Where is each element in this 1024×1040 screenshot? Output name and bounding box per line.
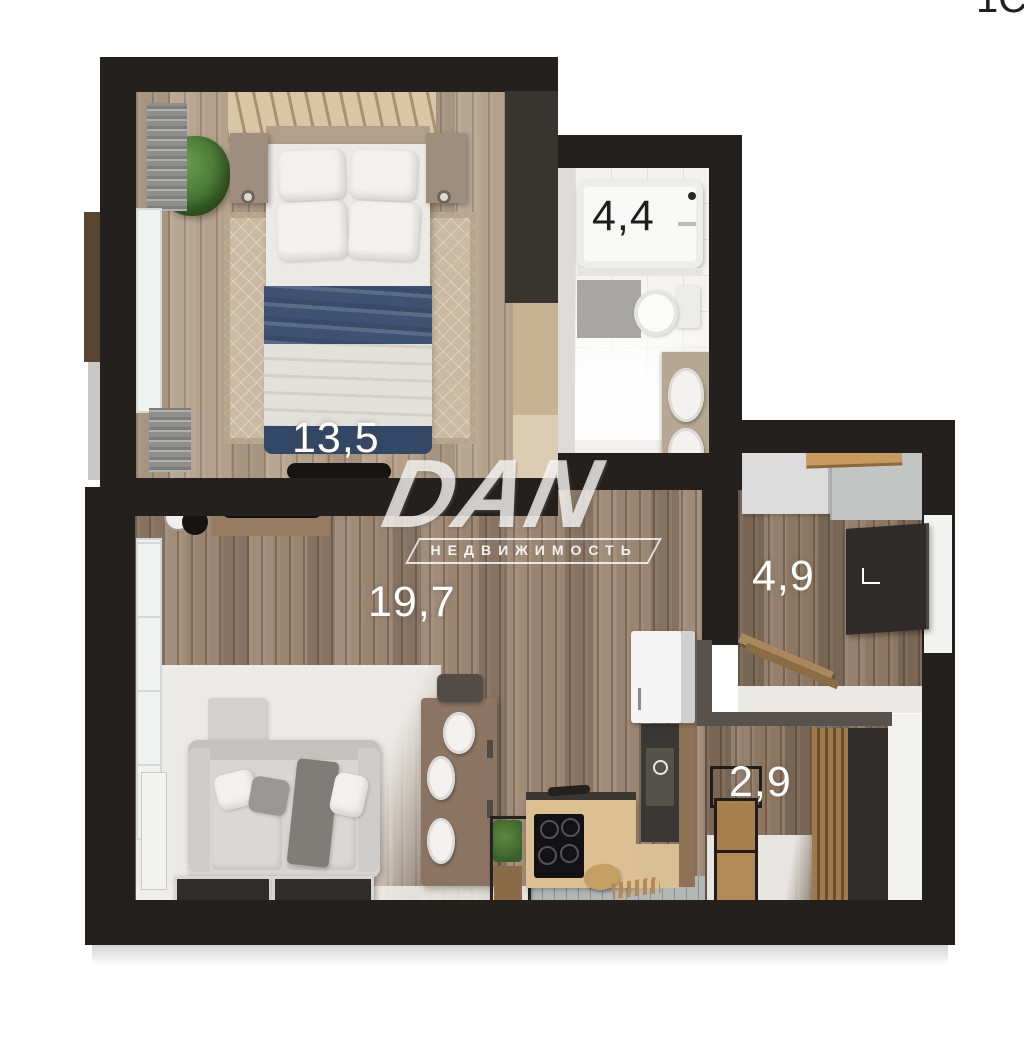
wall-hallway-top: [709, 420, 955, 453]
lamp-right: [437, 190, 451, 204]
entrance-door: [846, 523, 929, 635]
radiator: [141, 772, 167, 890]
room-area-label-hallway: 4,9: [752, 552, 815, 601]
toilet-tank: [676, 286, 700, 328]
watermark-logo: DAN НЕДВИЖИМОСТЬ: [386, 446, 655, 564]
bedroom-niche-wood: [513, 303, 558, 415]
table-plate: [427, 756, 455, 800]
hallway-bottom-wall-face: [738, 686, 922, 713]
burner-icon: [540, 820, 559, 839]
wall-bedroom-top: [100, 57, 557, 92]
sofa-armrest: [188, 748, 210, 872]
bed-pillow: [350, 149, 418, 201]
wall-bottom: [85, 900, 955, 945]
tv-console: [212, 516, 330, 536]
bed-pillow: [348, 200, 421, 262]
kitchen-side-panel: [679, 724, 695, 887]
curtain-top: [147, 103, 187, 211]
wall-right-outer: [922, 420, 955, 945]
room-area-label-bedroom: 13,5: [292, 414, 380, 463]
cropped-corner-text: 1С: [976, 0, 1024, 22]
bedroom-wardrobe: [505, 91, 558, 303]
sink: [668, 368, 704, 422]
toilet-bowl: [634, 290, 678, 336]
curtain-bottom: [149, 408, 191, 472]
lamp-left: [241, 190, 255, 204]
room-area-label-living: 19,7: [368, 578, 456, 627]
table-handle: [487, 740, 493, 758]
floor-plan-image: 13,5 4,4 19,7 4,9 2,9 DAN НЕДВИЖИМОСТЬ 1…: [0, 0, 1024, 1040]
bathroom-left-wall-face: [558, 166, 575, 456]
table-plate: [427, 818, 455, 864]
bathtub-faucet: [688, 192, 696, 200]
closet-slat-doors: [812, 728, 848, 902]
bed-pillow: [276, 200, 349, 262]
wall-hallway-closet: [705, 712, 892, 726]
watermark-subtitle-text: НЕДВИЖИМОСТЬ: [431, 542, 638, 558]
bath-shelf: [577, 268, 703, 276]
bath-mat: [577, 280, 641, 338]
wall-bedroom-left: [100, 57, 136, 490]
room-area-label-bathroom: 4,4: [592, 192, 655, 241]
burner-icon: [538, 846, 557, 865]
wall-living-hallway: [702, 453, 738, 645]
dining-chair: [437, 674, 483, 702]
oven-knob: [653, 760, 668, 775]
watermark-brand-text: DAN: [376, 446, 666, 542]
sofa-backrest: [188, 740, 380, 760]
rack-plants: [493, 820, 522, 862]
bed-headboard: [266, 126, 430, 146]
closet-wardrobe: [848, 728, 890, 904]
sofa-pillow-gray: [247, 775, 291, 817]
fridge-handle: [638, 688, 641, 710]
cooktop: [534, 814, 584, 878]
table-plate: [443, 712, 475, 754]
bathtub-handle: [678, 222, 696, 226]
burner-icon: [561, 818, 580, 837]
wall-bathroom-right: [709, 135, 742, 453]
closet-right-wall-face: [888, 714, 922, 912]
watermark-subtitle-box: НЕДВИЖИМОСТЬ: [405, 538, 662, 564]
wall-living-left: [85, 487, 135, 912]
bedroom-window: [136, 208, 162, 413]
oven-door: [646, 748, 674, 806]
room-area-label-closet: 2,9: [729, 758, 792, 807]
bed-blanket-navy: [264, 286, 432, 344]
door-swing-mark: [862, 568, 880, 584]
bed-pillow: [278, 149, 346, 201]
rack-box: [494, 866, 522, 904]
burner-icon: [560, 844, 579, 863]
